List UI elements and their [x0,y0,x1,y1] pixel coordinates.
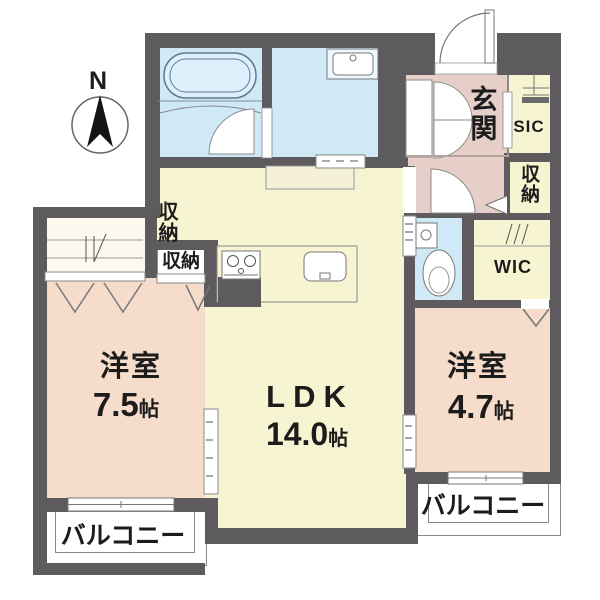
sliding-door-bedroom-left [204,409,218,494]
storage-hall-door [486,196,507,214]
kitchen-island [217,246,357,307]
bedroom-right-area: 4.7帖 [421,390,541,425]
toilet-sliding-door [403,216,416,256]
wic-hanger-icon [474,224,551,246]
bedroom-right-label: 洋室 [418,352,538,382]
floor-plan: N 玄関 SIC 収納 WIC 収納 収納 洋室 7.5帖 LDK 14.0帖 … [0,0,600,600]
sic-shelf-icon [522,74,549,103]
north-compass-icon [72,95,128,153]
closet-left-shelves [47,234,143,262]
bathtub-icon [158,53,262,113]
bedroom-left-label: 洋室 [71,352,191,382]
kitchen-cabinet [266,166,354,189]
stove-icon [222,251,260,279]
compass-n-label: N [84,68,112,94]
storage-hall-label: 収納 [518,164,538,204]
kitchen-sink-icon [304,252,346,281]
storage-bedroom-label: 収納 [157,252,205,272]
storage-ldk-label: 収納 [155,201,176,243]
wall-kitchen-stub-h [218,277,261,307]
window-bedroom-right [448,472,523,484]
balcony-left-label: バルコニー [48,523,198,549]
entrance-closet-doors [406,80,472,158]
hall-door [403,167,475,213]
washbasin-icon [327,49,378,79]
sliding-door-bedroom-right [403,415,416,468]
entrance-label: 玄関 [467,85,495,143]
closet-left-folding-doors [45,272,145,312]
sic-label: SIC [506,118,552,136]
window-bedroom-left [68,498,174,511]
toilet-icon [416,223,455,296]
storage-bedroom-door [157,274,210,310]
ldk-label: LDK [255,381,365,414]
washroom-sliding-door [316,155,365,168]
wic-folding-door [521,299,549,326]
wic-label: WIC [490,258,536,277]
bathroom-door [209,108,272,158]
entrance-door [435,10,497,74]
ldk-area: 14.0帖 [252,418,362,452]
balcony-right-label: バルコニー [408,493,558,519]
bedroom-left-area: 7.5帖 [66,388,186,423]
